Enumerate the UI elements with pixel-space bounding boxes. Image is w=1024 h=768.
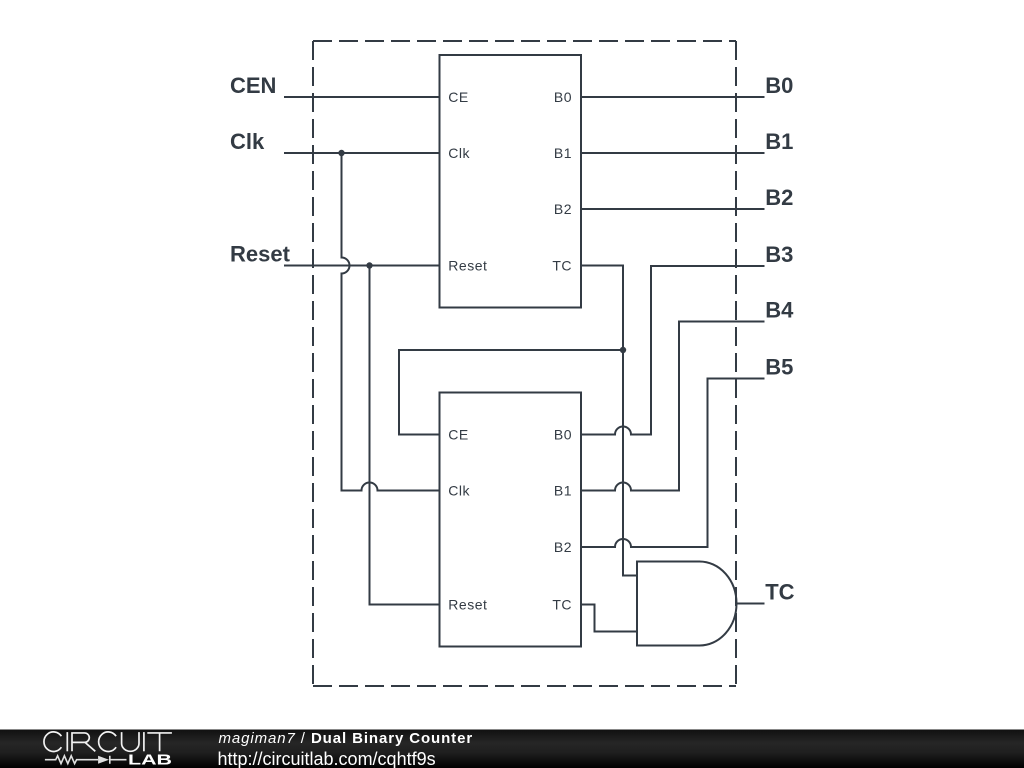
svg-text:B0: B0 [554,89,572,105]
svg-text:Reset: Reset [448,597,487,613]
svg-text:TC: TC [765,580,794,605]
svg-text:LAB: LAB [128,751,172,768]
svg-text:B1: B1 [554,483,572,499]
svg-text:B2: B2 [554,539,572,555]
svg-text:Clk: Clk [230,129,265,154]
svg-text:Clk: Clk [448,145,470,161]
svg-text:B0: B0 [554,427,572,443]
svg-text:B2: B2 [554,201,572,217]
svg-text:CEN: CEN [230,73,276,98]
svg-text:B2: B2 [765,185,793,210]
svg-text:B1: B1 [765,129,793,154]
svg-text:Reset: Reset [448,258,487,274]
svg-text:Clk: Clk [448,483,470,499]
svg-text:TC: TC [552,597,572,613]
svg-text:B1: B1 [554,145,572,161]
svg-text:B4: B4 [765,298,794,323]
svg-text:B3: B3 [765,242,793,267]
svg-text:Reset: Reset [230,242,291,267]
svg-text:CE: CE [448,89,468,105]
svg-text:magiman7 / Dual Binary Counter: magiman7 / Dual Binary Counter [219,730,474,747]
svg-text:CE: CE [448,427,468,443]
svg-text:TC: TC [552,258,572,274]
svg-text:B0: B0 [765,73,793,98]
svg-text:http://circuitlab.com/cqhtf9s: http://circuitlab.com/cqhtf9s [218,749,436,768]
svg-text:B5: B5 [765,355,793,380]
